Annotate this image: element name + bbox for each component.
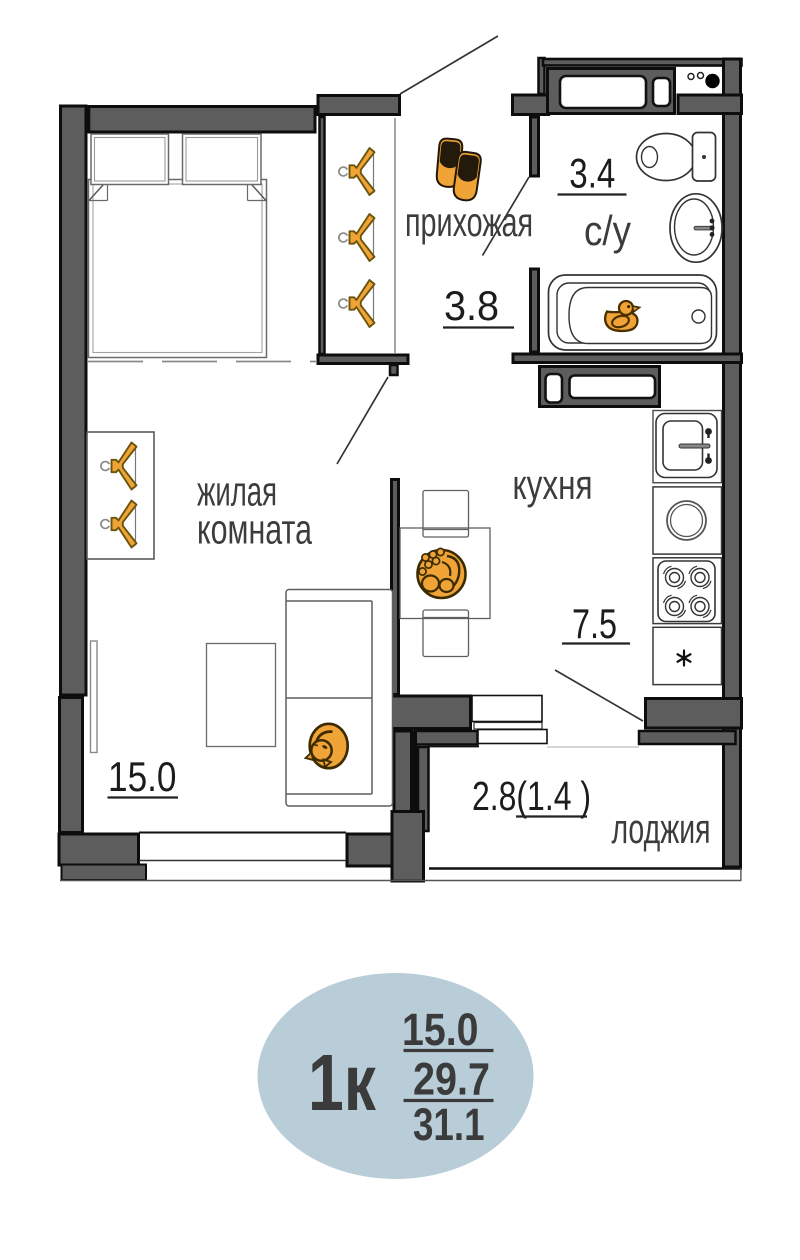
svg-text:3.4: 3.4 (569, 150, 615, 197)
svg-text:лоджия: лоджия (612, 805, 711, 852)
svg-text:29.7: 29.7 (413, 1054, 490, 1105)
svg-text:15.0: 15.0 (108, 753, 177, 800)
svg-text:прихожая: прихожая (405, 199, 533, 245)
svg-text:кухня: кухня (513, 461, 593, 508)
svg-text:комната: комната (197, 506, 312, 553)
svg-text:31.1: 31.1 (413, 1099, 485, 1150)
svg-text:7.5: 7.5 (572, 600, 617, 647)
svg-text:3.8: 3.8 (444, 282, 499, 329)
svg-text:2.8(1.4 ): 2.8(1.4 ) (472, 773, 591, 819)
svg-text:15.0: 15.0 (402, 1004, 479, 1055)
svg-text:с/у: с/у (584, 207, 631, 254)
svg-text:1к: 1к (308, 1038, 377, 1127)
